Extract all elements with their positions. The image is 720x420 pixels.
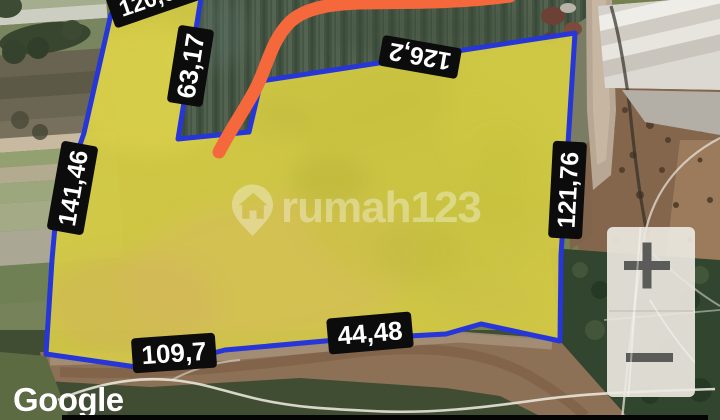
svg-text:Google: Google (13, 381, 124, 418)
svg-text:121,76: 121,76 (553, 151, 585, 229)
svg-text:rumah123: rumah123 (281, 183, 481, 232)
svg-text:109,7: 109,7 (140, 336, 207, 370)
svg-text:44,48: 44,48 (336, 315, 403, 351)
